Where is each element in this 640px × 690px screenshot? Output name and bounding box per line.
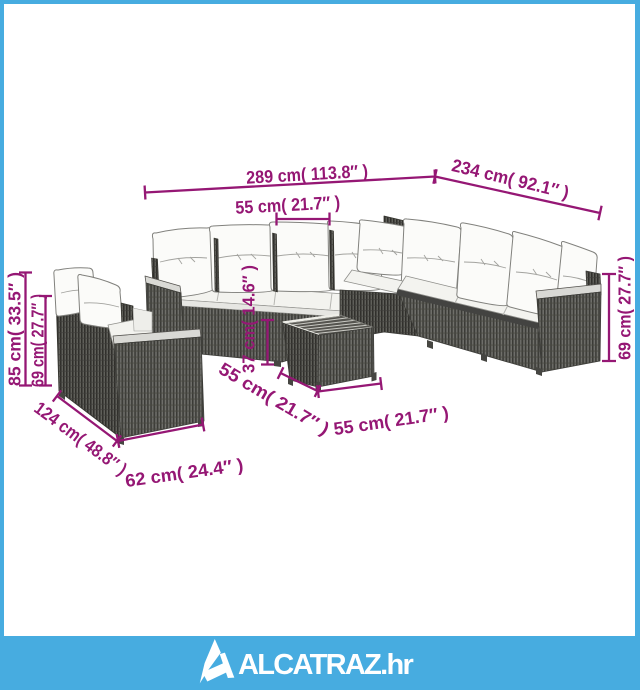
svg-text:85 cm( 33.5″ ): 85 cm( 33.5″ ) xyxy=(4,272,24,386)
svg-text:69 cm( 27.7″ ): 69 cm( 27.7″ ) xyxy=(615,256,635,360)
svg-text:37 cm( 14.6″ ): 37 cm( 14.6″ ) xyxy=(238,265,259,373)
svg-text:69 cm( 27.7″ ): 69 cm( 27.7″ ) xyxy=(28,294,48,387)
svg-text:ALCATRAZ.hr: ALCATRAZ.hr xyxy=(238,649,413,681)
